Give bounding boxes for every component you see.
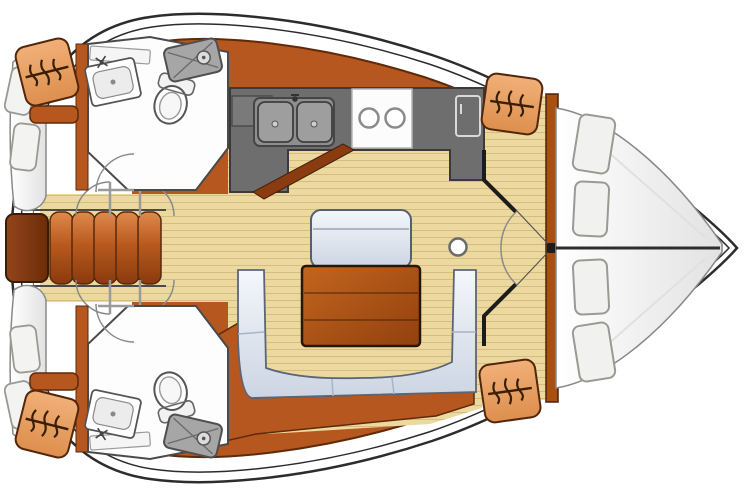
locker-drawer — [30, 106, 78, 123]
faucet-icon — [292, 96, 298, 102]
forward-corridor-floor — [478, 96, 550, 400]
step — [72, 212, 95, 284]
pillow — [572, 322, 616, 383]
companionway-landing — [6, 214, 48, 282]
salon-table — [302, 266, 420, 346]
pillow — [573, 181, 610, 237]
locker-drawer — [30, 373, 78, 390]
step — [94, 212, 117, 284]
hanging-locker — [480, 72, 543, 135]
step — [50, 212, 73, 284]
boat-floor-plan — [0, 0, 744, 496]
stove-burner-icon — [386, 109, 405, 128]
pillow — [572, 114, 616, 175]
drain-icon — [272, 121, 278, 127]
stove-burner-icon — [360, 109, 379, 128]
mast-post-icon — [450, 239, 467, 256]
galley-double-sink — [254, 95, 334, 146]
hanging-locker — [478, 358, 542, 423]
drain-icon — [311, 121, 317, 127]
step — [116, 212, 139, 284]
step — [138, 212, 161, 284]
pillow — [573, 259, 610, 315]
cushion-seam — [332, 379, 333, 396]
salon-bench — [311, 210, 411, 268]
pillow — [9, 325, 40, 374]
companionway-steps — [6, 210, 166, 286]
floor-plan-svg — [0, 0, 744, 496]
pillow — [9, 123, 40, 172]
door-post — [547, 243, 556, 253]
